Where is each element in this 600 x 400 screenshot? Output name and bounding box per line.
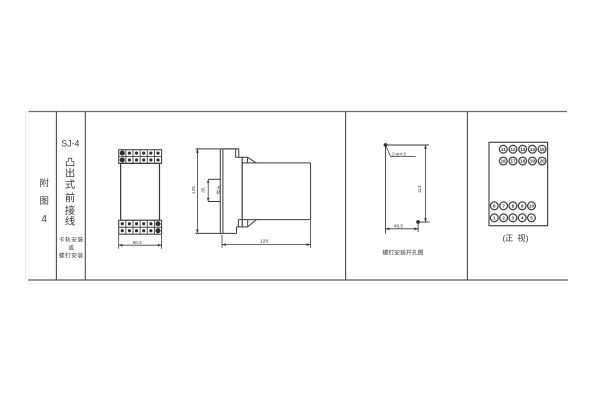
svg-text:SJ-4: SJ-4: [61, 139, 79, 149]
svg-text:20: 20: [540, 159, 546, 164]
svg-text:13: 13: [520, 147, 526, 152]
svg-text:12: 12: [510, 147, 516, 152]
svg-text:2-φ4.5: 2-φ4.5: [392, 151, 406, 157]
svg-text:10: 10: [529, 203, 535, 208]
svg-text:17: 17: [510, 159, 516, 164]
svg-text:125: 125: [191, 186, 197, 194]
svg-text:113: 113: [417, 185, 423, 193]
svg-text:19: 19: [530, 159, 536, 164]
svg-text:35: 35: [201, 187, 207, 193]
svg-text:60.5: 60.5: [133, 240, 142, 245]
svg-text:128: 128: [260, 239, 268, 245]
svg-text:4: 4: [41, 214, 47, 225]
svg-text:48.5: 48.5: [394, 224, 404, 230]
svg-text:): ): [526, 233, 529, 243]
svg-text:11: 11: [501, 147, 506, 152]
svg-text:14: 14: [530, 147, 536, 152]
svg-text:15: 15: [540, 147, 546, 152]
svg-text:(: (: [503, 233, 506, 243]
svg-text:18: 18: [520, 159, 526, 164]
svg-text:16: 16: [501, 159, 507, 164]
